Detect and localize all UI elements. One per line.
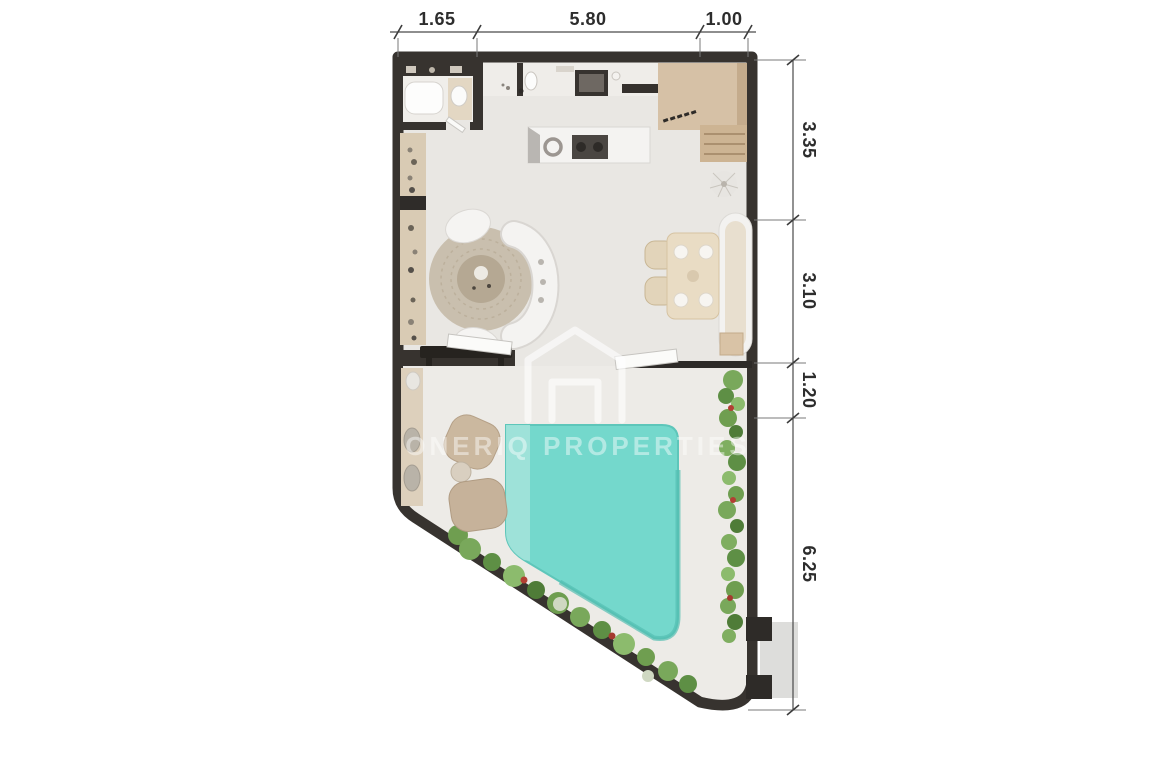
sun-lounger bbox=[447, 476, 509, 533]
dim-right-4: 6.25 bbox=[799, 545, 819, 582]
dim-right-2: 3.10 bbox=[799, 272, 819, 309]
dimension-right: 3.35 3.10 1.20 6.25 bbox=[748, 55, 819, 715]
shelf bbox=[622, 84, 662, 93]
dimension-top: 1.65 5.80 1.00 bbox=[390, 9, 756, 57]
console-niche bbox=[400, 196, 426, 210]
dim-right-1: 3.35 bbox=[799, 121, 819, 158]
bathroom bbox=[395, 62, 483, 132]
side-table bbox=[451, 462, 471, 482]
dim-top-1: 1.65 bbox=[418, 9, 455, 29]
dim-top-2: 5.80 bbox=[569, 9, 606, 29]
bathtub bbox=[405, 82, 443, 114]
dim-top-3: 1.00 bbox=[705, 9, 742, 29]
floor-plan-page: ONERIQ PROPERTIES 1.65 5.80 1.00 3.35 3.… bbox=[0, 0, 1154, 768]
basin bbox=[525, 72, 537, 90]
toilet bbox=[451, 86, 467, 106]
floor-plan-canvas: ONERIQ PROPERTIES 1.65 5.80 1.00 3.35 3.… bbox=[0, 0, 1154, 768]
dim-right-3: 1.20 bbox=[799, 371, 819, 408]
kitchen-island bbox=[528, 127, 650, 163]
kitchen-counter bbox=[483, 63, 662, 96]
dining-side-table bbox=[720, 333, 743, 355]
watermark-text: ONERIQ PROPERTIES bbox=[405, 431, 750, 461]
